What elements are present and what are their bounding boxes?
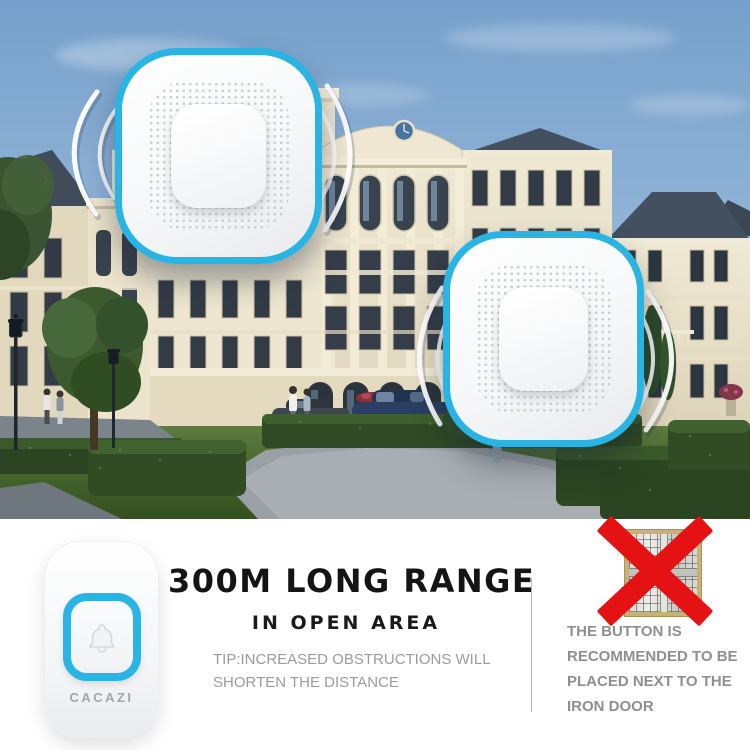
tip-text: TIP:INCREASED OBSTRUCTIONS WILL SHORTEN … bbox=[168, 649, 524, 694]
bell-icon bbox=[82, 617, 122, 657]
tip-line: TIP:INCREASED OBSTRUCTIONS WILL bbox=[213, 649, 524, 672]
doorbell-receiver-2 bbox=[443, 231, 644, 447]
receiver-button bbox=[171, 104, 266, 208]
bell-button bbox=[63, 593, 141, 681]
product-banner: CACAZI 300M LONG RANGE IN OPEN AREA TIP:… bbox=[0, 0, 750, 750]
warning-line: RECOMMENDED TO BE bbox=[567, 644, 749, 669]
doorbell-receiver-1 bbox=[115, 48, 322, 264]
warning-text: THE BUTTON IS RECOMMENDED TO BE PLACED N… bbox=[567, 619, 749, 719]
building-scene-photo bbox=[0, 0, 750, 519]
receiver-button bbox=[499, 287, 588, 391]
vertical-divider bbox=[531, 578, 532, 712]
warning-line: THE BUTTON IS bbox=[567, 619, 749, 644]
warning-line: IRON DOOR bbox=[567, 694, 749, 719]
tip-line: SHORTEN THE DISTANCE bbox=[213, 672, 524, 695]
building-scene bbox=[0, 0, 750, 519]
range-subtitle: IN OPEN AREA bbox=[168, 612, 524, 634]
brand-label: CACAZI bbox=[44, 690, 159, 705]
headline-block: 300M LONG RANGE IN OPEN AREA TIP:INCREAS… bbox=[168, 562, 524, 694]
warning-line: PLACED NEXT TO THE bbox=[567, 669, 749, 694]
range-title: 300M LONG RANGE bbox=[168, 562, 524, 600]
doorbell-transmitter: CACAZI bbox=[44, 541, 159, 738]
